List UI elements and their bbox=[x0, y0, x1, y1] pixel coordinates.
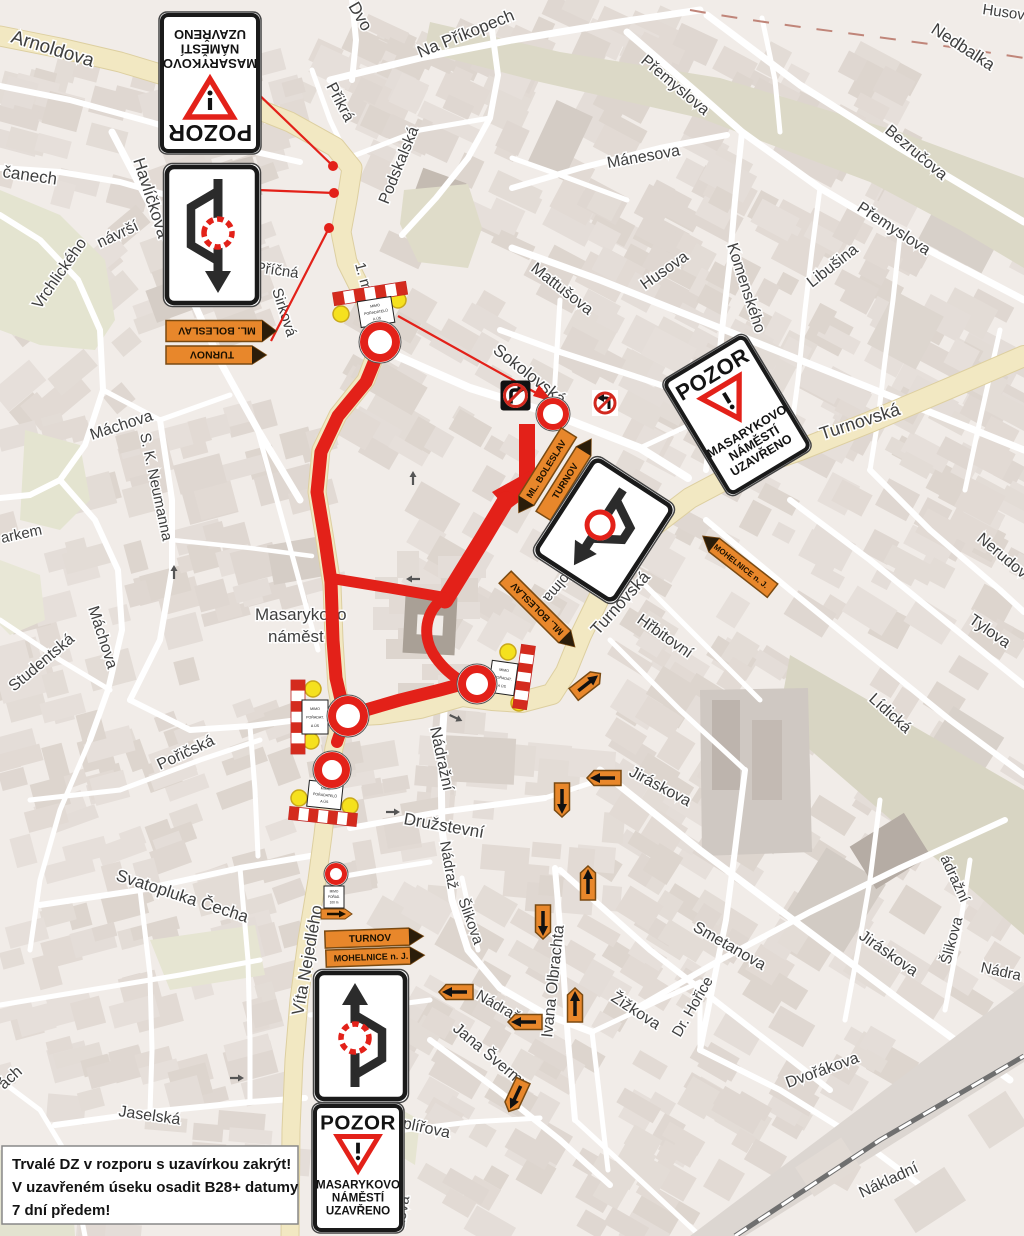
svg-text:7 dní předem!: 7 dní předem! bbox=[12, 1202, 110, 1219]
svg-text:Trvalé DZ v rozporu s uzavírko: Trvalé DZ v rozporu s uzavírkou zakrýt! bbox=[12, 1156, 291, 1173]
svg-text:POŘAD.: POŘAD. bbox=[328, 894, 340, 899]
svg-text:MIMO: MIMO bbox=[330, 890, 339, 894]
svg-text:NÁMĚSTÍ: NÁMĚSTÍ bbox=[180, 42, 239, 57]
svg-text:MASARYKOVO: MASARYKOVO bbox=[163, 56, 257, 71]
svg-text:ML. BOLESLAV: ML. BOLESLAV bbox=[178, 324, 255, 336]
svg-text:náměst: náměst bbox=[268, 627, 324, 646]
svg-text:TURNOV: TURNOV bbox=[190, 348, 234, 360]
svg-text:V uzavřeném úseku osadit B28+: V uzavřeném úseku osadit B28+ datumy bbox=[12, 1179, 299, 1196]
svg-text:UZAVŘENO: UZAVŘENO bbox=[326, 1204, 390, 1217]
svg-text:MIMO: MIMO bbox=[310, 707, 320, 711]
svg-text:NÁMĚSTÍ: NÁMĚSTÍ bbox=[332, 1191, 385, 1204]
svg-text:UZAVŘENO: UZAVŘENO bbox=[174, 27, 246, 42]
svg-text:POŘADAT.: POŘADAT. bbox=[306, 714, 324, 719]
svg-text:TURNOV: TURNOV bbox=[349, 933, 392, 945]
svg-text:MASARYKOVO: MASARYKOVO bbox=[316, 1178, 400, 1191]
svg-text:A ÚS: A ÚS bbox=[320, 798, 329, 804]
svg-text:100 m: 100 m bbox=[330, 901, 339, 905]
svg-text:POZOR: POZOR bbox=[168, 120, 252, 146]
svg-text:A ÚS: A ÚS bbox=[311, 723, 320, 728]
svg-text:POZOR: POZOR bbox=[320, 1111, 396, 1134]
